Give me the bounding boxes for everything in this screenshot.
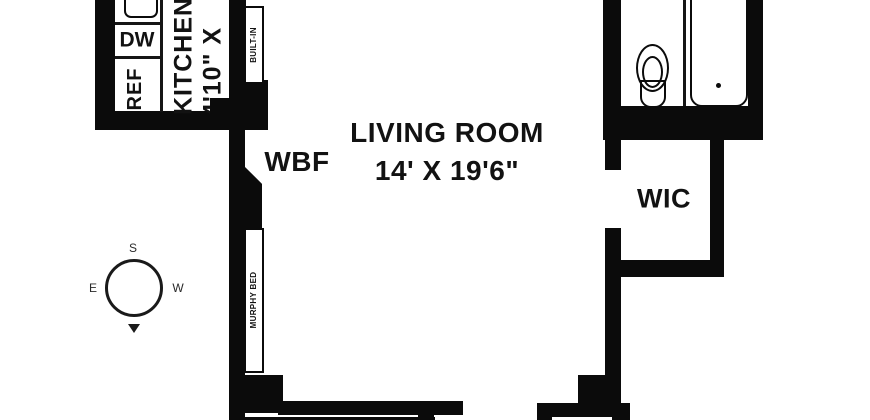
- bathroom-south-wall: [603, 106, 763, 140]
- kitchen-corner-step: [210, 98, 245, 130]
- south-right-stub-left: [537, 403, 552, 420]
- north-arrow-icon: [128, 324, 140, 333]
- dishwasher-fridge-divider: [115, 56, 163, 59]
- refrigerator-label: REF: [125, 68, 145, 111]
- bathtub-fixture: [690, 0, 748, 107]
- built-in-label: BUILT-IN: [250, 27, 258, 63]
- east-wall-lower: [605, 228, 621, 406]
- bathroom-west-wall: [603, 0, 621, 112]
- kitchen-label: KITCHEN: [172, 0, 197, 115]
- southwest-corner-block: [231, 375, 283, 413]
- bathroom-east-wall: [748, 0, 763, 112]
- wic-label: WIC: [637, 186, 691, 213]
- compass-east-label: E: [89, 281, 97, 295]
- south-wall-left: [278, 401, 463, 415]
- floor-plan: DW REF KITCHEN 4'10" X BUILT-IN MURPHY B…: [0, 0, 870, 420]
- living-room-dimensions: 14' X 19'6": [375, 157, 519, 185]
- bathtub-drain: [716, 83, 721, 88]
- kitchen-sink-fixture: [124, 0, 158, 18]
- living-room-label: LIVING ROOM: [350, 119, 544, 147]
- dishwasher-top-line: [115, 22, 163, 25]
- compass-west-label: W: [172, 281, 183, 295]
- bathroom-divider-line: [683, 0, 686, 106]
- wic-east-wall: [710, 134, 724, 264]
- dishwasher-label: DW: [120, 30, 155, 51]
- murphy-bed-label: MURPHY BED: [250, 272, 258, 329]
- fireplace-label: WBF: [264, 148, 329, 176]
- wic-south-wall: [605, 260, 724, 277]
- entry-tab: [418, 414, 434, 420]
- fireplace-bump: [244, 166, 262, 232]
- compass-rose: [105, 259, 163, 317]
- compass-south-label: S: [129, 241, 137, 255]
- toilet-bowl-inner: [642, 56, 663, 88]
